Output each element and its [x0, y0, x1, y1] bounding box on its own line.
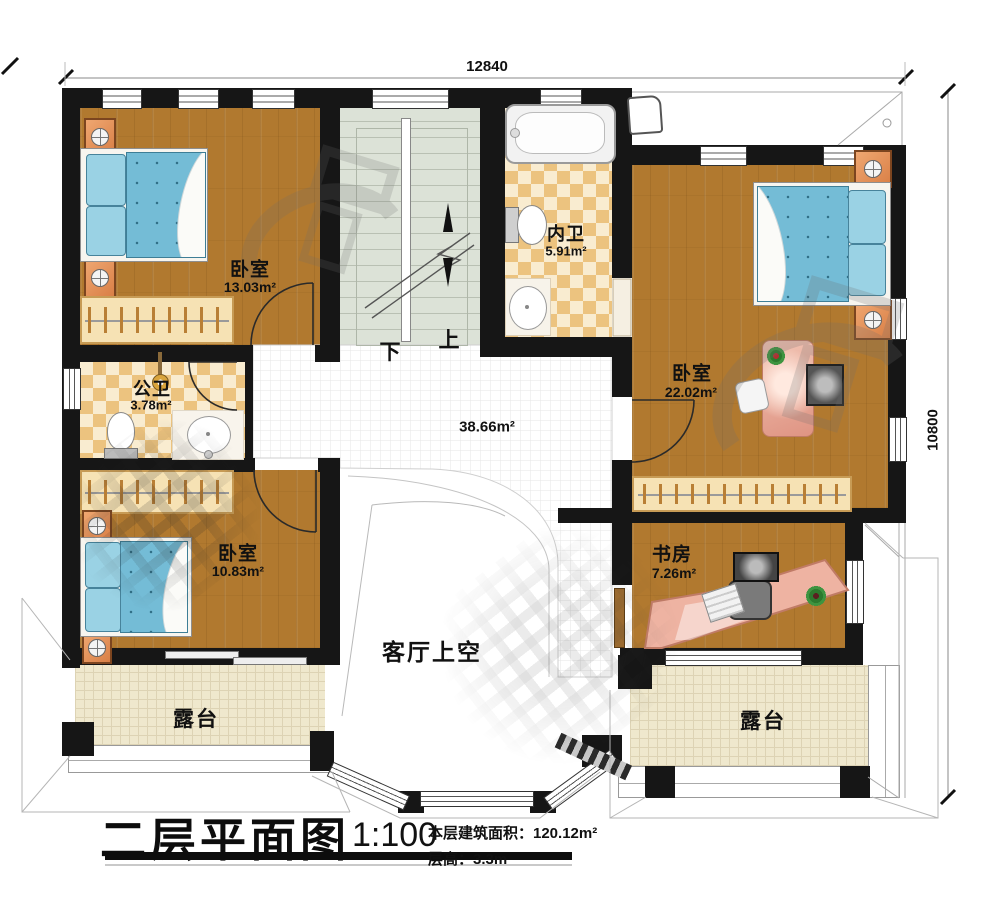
pillow	[85, 588, 121, 632]
title-block: 二层平面图 1:100 本层建筑面积：120.12m² 层高：3.3m	[0, 800, 1000, 914]
chair	[734, 377, 770, 415]
bedroom-bl-area: 10.83m²	[212, 563, 264, 579]
wall	[612, 337, 632, 397]
terrace-post	[645, 766, 675, 798]
plan-title: 二层平面图	[100, 804, 350, 870]
sink	[172, 410, 244, 460]
floor-plan-page: 卧室 13.03m² 内卫 5.91m² 卧室 22.02m² 公卫 3.78m…	[0, 0, 1000, 914]
sliding-door	[233, 657, 307, 665]
computer-monitor	[806, 364, 844, 406]
bedroom-bl-label: 卧室	[218, 539, 258, 566]
public-bath-area: 3.78m²	[130, 398, 171, 413]
floor-height-note: 层高：3.3m	[428, 848, 507, 869]
stairs-down-label: 下	[380, 336, 401, 366]
study-area: 7.26m²	[652, 565, 696, 581]
bedroom-tr-label: 卧室	[672, 359, 712, 386]
wardrobe	[80, 470, 234, 514]
terrace-left-railing	[68, 745, 334, 773]
window	[700, 146, 747, 166]
dimension-top: 12840	[466, 58, 508, 75]
terrace-right-label: 露台	[740, 705, 786, 735]
bathtub	[505, 104, 616, 164]
wall	[480, 337, 612, 357]
computer-monitor	[733, 552, 779, 582]
terrace-left-label: 露台	[173, 703, 219, 733]
pillow	[848, 244, 886, 296]
window	[63, 368, 81, 410]
wall	[845, 508, 906, 523]
wall	[480, 88, 505, 345]
window	[102, 89, 142, 109]
plan-scale: 1:100	[352, 816, 437, 855]
terrace-post	[840, 766, 870, 798]
terrace-right-railing-side	[868, 665, 900, 798]
terrace-post	[62, 722, 94, 756]
stair-handrail	[401, 118, 411, 342]
window	[889, 417, 907, 462]
bed-mattress	[757, 186, 849, 302]
bedroom-tl-label: 卧室	[230, 255, 270, 282]
void-label: 客厅上空	[382, 633, 482, 667]
pendant-lamp	[158, 352, 162, 376]
floor-area-note: 本层建筑面积：120.12m²	[428, 822, 597, 843]
plant	[766, 346, 786, 366]
stairwell-inner-outline	[356, 128, 468, 346]
sink	[505, 278, 551, 336]
nightstand	[84, 258, 116, 298]
window	[178, 89, 219, 109]
wall	[245, 362, 253, 458]
pillow	[86, 154, 126, 206]
wall	[315, 345, 340, 362]
toilet	[505, 205, 547, 245]
terrace-post	[618, 655, 652, 689]
wardrobe	[632, 476, 852, 512]
toilet	[104, 412, 138, 458]
pillow	[848, 190, 886, 244]
pillow	[85, 542, 121, 588]
sliding-door	[165, 651, 239, 659]
window	[372, 89, 449, 109]
wall	[612, 523, 632, 585]
bed-mattress	[126, 152, 206, 258]
duct-box	[627, 95, 664, 135]
wall	[320, 458, 340, 665]
hall-area-label: 38.66m²	[459, 419, 515, 436]
stairs-up-label: 上	[439, 324, 460, 354]
window	[252, 89, 295, 109]
plant	[805, 585, 827, 607]
ensuite-label: 内卫	[547, 220, 585, 246]
dimension-right: 10800	[925, 409, 942, 451]
wardrobe	[80, 296, 234, 344]
study-label: 书房	[652, 540, 692, 567]
ensuite-area: 5.91m²	[545, 244, 586, 259]
bedroom-tl-area: 13.03m²	[224, 279, 276, 295]
study-door-leaf	[614, 588, 625, 648]
bed-mattress	[120, 541, 188, 633]
pillow	[86, 206, 126, 256]
wall	[320, 108, 340, 345]
bedroom-tr-area: 22.02m²	[665, 384, 717, 400]
nightstand	[854, 300, 892, 340]
